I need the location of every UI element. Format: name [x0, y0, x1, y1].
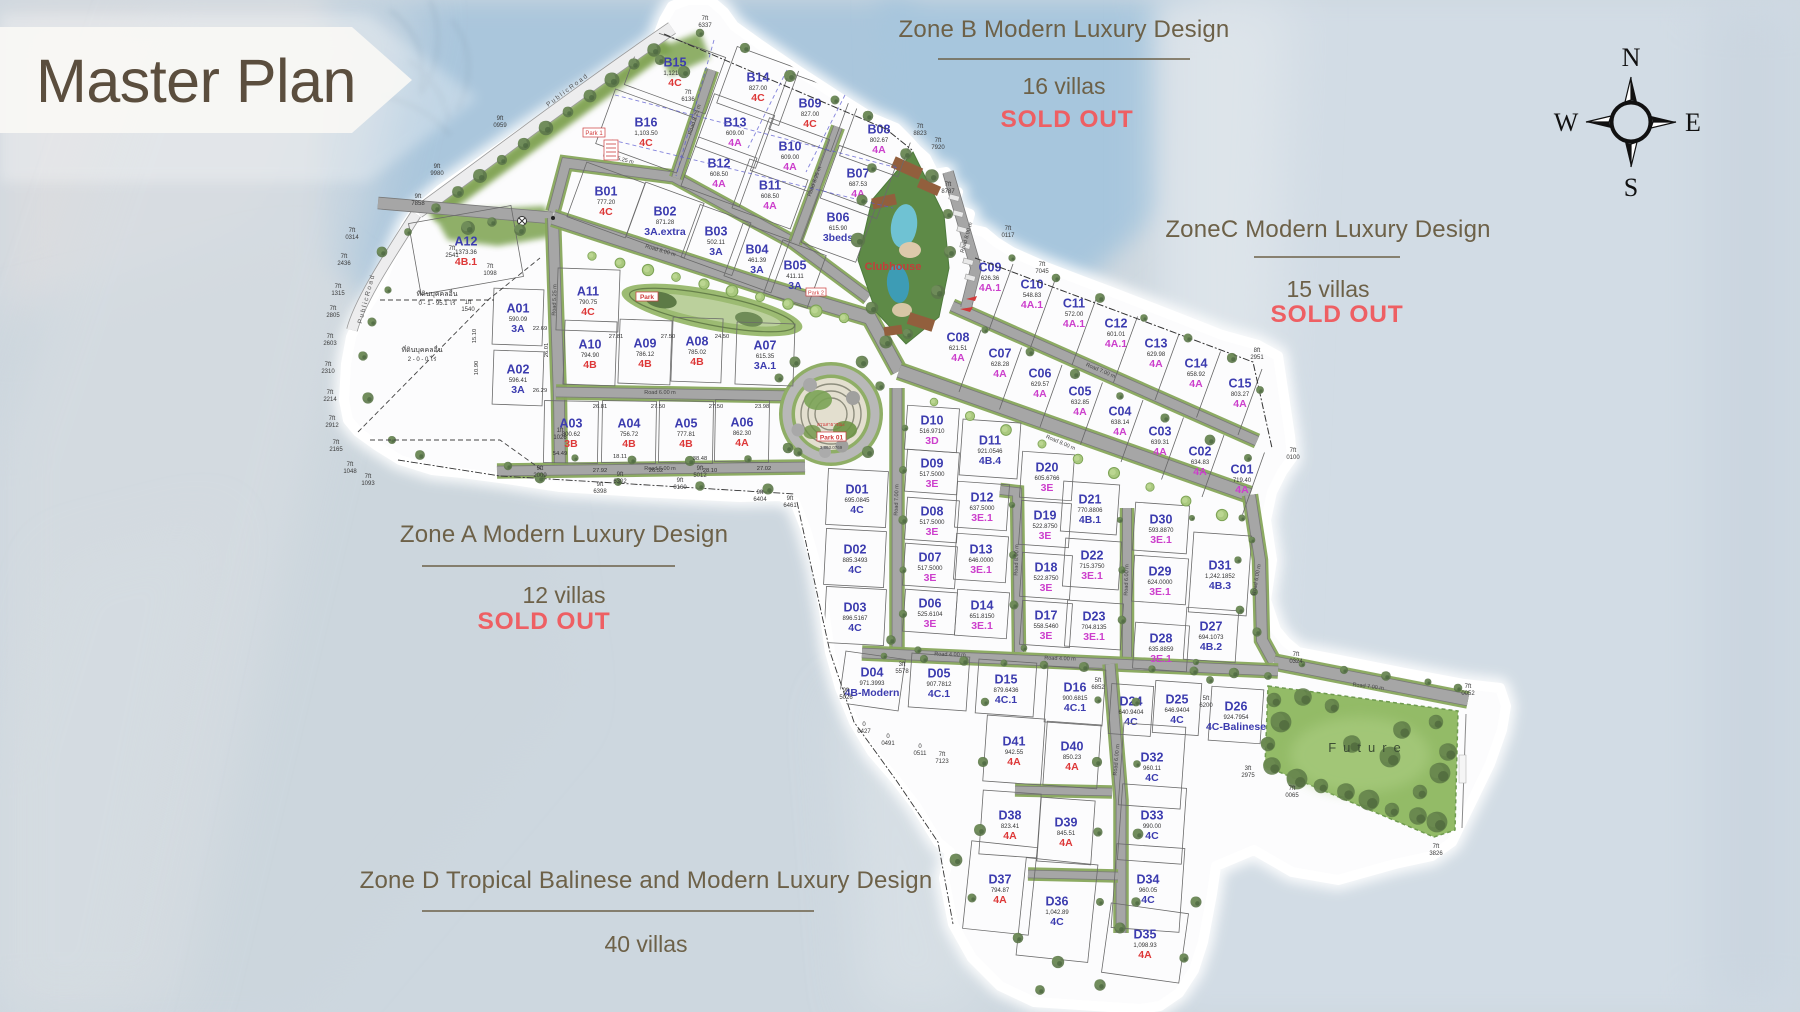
svg-text:9ft: 9ft	[843, 688, 850, 694]
svg-text:Road 6.00 m: Road 6.00 m	[644, 390, 676, 396]
svg-text:0065: 0065	[1285, 793, 1299, 799]
svg-text:1315: 1315	[331, 291, 345, 297]
svg-text:7ft: 7ft	[335, 284, 342, 290]
svg-text:Clubhouse: Clubhouse	[865, 261, 922, 273]
svg-text:3E: 3E	[926, 478, 939, 490]
svg-text:7ft: 7ft	[329, 416, 336, 422]
svg-text:C03: C03	[1149, 425, 1172, 439]
svg-text:5ft: 5ft	[1095, 678, 1102, 684]
svg-text:D36: D36	[1046, 895, 1069, 909]
svg-text:7ft: 7ft	[1293, 652, 1300, 658]
svg-text:4C: 4C	[850, 504, 864, 516]
svg-text:7ft: 7ft	[945, 182, 952, 188]
svg-text:4C-Balinese: 4C-Balinese	[1206, 721, 1266, 733]
svg-text:3E.1: 3E.1	[970, 564, 992, 576]
svg-text:4C: 4C	[751, 92, 765, 104]
svg-text:3D: 3D	[925, 435, 939, 447]
svg-text:16 villas: 16 villas	[1022, 73, 1105, 99]
svg-text:3E.1: 3E.1	[971, 620, 993, 632]
svg-text:4A: 4A	[1149, 358, 1163, 370]
svg-text:4C.1: 4C.1	[928, 688, 950, 700]
svg-text:4A: 4A	[1153, 446, 1167, 458]
svg-text:D26: D26	[1225, 700, 1248, 714]
svg-text:0100: 0100	[1286, 455, 1300, 461]
svg-text:4A: 4A	[1189, 378, 1203, 390]
svg-text:C14: C14	[1185, 357, 1208, 371]
svg-text:E: E	[1685, 108, 1701, 137]
svg-text:7ft: 7ft	[1005, 226, 1012, 232]
svg-text:B07: B07	[847, 167, 870, 181]
svg-text:4A: 4A	[1073, 406, 1087, 418]
svg-text:3beds: 3beds	[823, 232, 854, 244]
svg-text:Zone A Modern Luxury Design: Zone A Modern Luxury Design	[400, 521, 728, 548]
svg-text:4A: 4A	[1235, 484, 1249, 496]
svg-text:3E.1: 3E.1	[1150, 653, 1172, 665]
svg-text:9ft: 9ft	[617, 472, 624, 478]
svg-text:C10: C10	[1021, 278, 1044, 292]
svg-text:Road 4.00 m: Road 4.00 m	[934, 651, 966, 658]
svg-text:D01: D01	[846, 483, 869, 497]
svg-text:0160: 0160	[673, 485, 687, 491]
svg-text:ที่ดินบุคคลอื่น: ที่ดินบุคคลอื่น	[401, 345, 442, 354]
svg-text:27.50: 27.50	[661, 334, 676, 340]
svg-text:4C: 4C	[1145, 830, 1159, 842]
svg-text:5026: 5026	[839, 695, 853, 701]
svg-text:26.81: 26.81	[593, 404, 608, 410]
svg-text:6852: 6852	[1091, 685, 1105, 691]
svg-text:B06: B06	[827, 211, 850, 225]
svg-text:B13: B13	[724, 116, 747, 130]
svg-text:Road 8.00 m: Road 8.00 m	[1013, 544, 1020, 576]
svg-text:D13: D13	[970, 543, 993, 557]
svg-text:7ft: 7ft	[449, 246, 456, 252]
svg-text:D20: D20	[1036, 461, 1059, 475]
svg-text:A11: A11	[577, 285, 599, 299]
svg-text:D35: D35	[1134, 928, 1157, 942]
svg-text:6200: 6200	[1199, 703, 1213, 709]
svg-text:1ft: 1ft	[465, 300, 472, 306]
svg-text:2214: 2214	[323, 397, 337, 403]
svg-text:1098: 1098	[483, 271, 497, 277]
svg-text:Road 5.25 m: Road 5.25 m	[551, 284, 558, 316]
svg-text:2805: 2805	[326, 313, 340, 319]
svg-text:D07: D07	[919, 551, 942, 565]
svg-text:3E: 3E	[1040, 582, 1053, 594]
svg-text:D08: D08	[921, 505, 944, 519]
svg-text:3A: 3A	[511, 323, 525, 335]
svg-text:D18: D18	[1035, 561, 1058, 575]
svg-text:4A: 4A	[1059, 837, 1073, 849]
svg-text:D29: D29	[1149, 565, 1172, 579]
svg-text:ที่ดินบุคคลอื่น: ที่ดินบุคคลอื่น	[416, 289, 457, 298]
svg-text:27.50: 27.50	[709, 404, 724, 410]
svg-text:4A.1: 4A.1	[979, 282, 1001, 294]
svg-text:Park 1: Park 1	[585, 131, 603, 137]
svg-text:0117: 0117	[1002, 233, 1016, 239]
svg-text:4B.2: 4B.2	[1200, 641, 1222, 653]
svg-text:7ft: 7ft	[333, 440, 340, 446]
svg-text:A04: A04	[618, 417, 641, 431]
svg-text:5578: 5578	[895, 669, 909, 675]
svg-text:28.10: 28.10	[703, 468, 718, 474]
svg-text:3E.1: 3E.1	[1081, 570, 1103, 582]
svg-text:4A: 4A	[1007, 756, 1021, 768]
svg-text:3E: 3E	[1040, 630, 1053, 642]
svg-text:4C: 4C	[581, 306, 595, 318]
svg-text:1540: 1540	[461, 307, 475, 313]
svg-text:B10: B10	[779, 140, 802, 154]
svg-text:7920: 7920	[931, 145, 945, 151]
svg-text:D09: D09	[921, 457, 944, 471]
svg-text:D02: D02	[844, 543, 867, 557]
svg-text:7ft: 7ft	[1290, 448, 1297, 454]
svg-text:7ft: 7ft	[685, 90, 692, 96]
svg-text:4C.1: 4C.1	[1064, 702, 1086, 714]
svg-text:4B: 4B	[638, 358, 652, 370]
svg-text:4A: 4A	[1233, 398, 1247, 410]
svg-text:6136: 6136	[681, 97, 695, 103]
svg-text:D41: D41	[1003, 735, 1026, 749]
svg-text:SOLD OUT: SOLD OUT	[1001, 106, 1134, 133]
svg-text:7ft: 7ft	[1039, 262, 1046, 268]
svg-text:4A: 4A	[1113, 426, 1127, 438]
svg-text:3826: 3826	[1429, 851, 1443, 857]
svg-text:7123: 7123	[935, 759, 949, 765]
svg-text:27.81: 27.81	[609, 334, 624, 340]
svg-text:C04: C04	[1109, 405, 1132, 419]
svg-text:Zone D Tropical Balinese and M: Zone D Tropical Balinese and Modern Luxu…	[360, 867, 933, 894]
svg-text:C06: C06	[1029, 367, 1052, 381]
svg-text:Road 6.00 m: Road 6.00 m	[644, 466, 676, 472]
svg-text:Road 4.00 m: Road 4.00 m	[1044, 655, 1076, 662]
svg-text:B03: B03	[705, 225, 728, 239]
svg-text:4C: 4C	[1145, 772, 1159, 784]
svg-text:2009: 2009	[533, 473, 547, 479]
svg-text:4B: 4B	[690, 356, 704, 368]
svg-text:9ft: 9ft	[597, 482, 604, 488]
svg-text:D06: D06	[919, 597, 942, 611]
svg-text:C13: C13	[1145, 337, 1168, 351]
svg-text:4C: 4C	[1170, 714, 1184, 726]
svg-text:Future: Future	[1328, 740, 1408, 755]
svg-text:26.29: 26.29	[533, 388, 548, 394]
svg-text:3,863.0769: 3,863.0769	[820, 445, 843, 450]
svg-text:0314: 0314	[345, 235, 359, 241]
svg-text:7ft: 7ft	[325, 362, 332, 368]
svg-text:C02: C02	[1189, 445, 1212, 459]
svg-text:D17: D17	[1035, 609, 1058, 623]
svg-text:4A: 4A	[1065, 761, 1079, 773]
svg-text:Park 01: Park 01	[820, 434, 844, 441]
svg-text:A02: A02	[507, 363, 530, 377]
svg-text:54.49: 54.49	[553, 451, 568, 457]
svg-text:4C: 4C	[848, 622, 862, 634]
svg-text:7ft: 7ft	[1289, 786, 1296, 792]
svg-text:2310: 2310	[321, 369, 335, 375]
svg-text:0959: 0959	[493, 123, 507, 129]
svg-text:0491: 0491	[881, 741, 895, 747]
svg-text:C01: C01	[1231, 463, 1254, 477]
svg-text:B02: B02	[654, 205, 677, 219]
svg-text:0511: 0511	[914, 751, 928, 757]
svg-text:2165: 2165	[329, 447, 343, 453]
svg-text:4A: 4A	[712, 178, 726, 190]
svg-text:ZoneC Modern Luxury Design: ZoneC Modern Luxury Design	[1165, 216, 1490, 243]
svg-text:SOLD OUT: SOLD OUT	[478, 608, 611, 635]
svg-text:10.90: 10.90	[474, 361, 480, 376]
svg-text:2975: 2975	[1241, 773, 1255, 779]
svg-text:2912: 2912	[325, 423, 339, 429]
svg-text:4A: 4A	[951, 352, 965, 364]
svg-text:D14: D14	[971, 599, 994, 613]
svg-text:C05: C05	[1069, 385, 1092, 399]
svg-text:4A: 4A	[1003, 830, 1017, 842]
svg-text:D37: D37	[989, 873, 1012, 887]
svg-text:D32: D32	[1141, 751, 1164, 765]
svg-text:4A.1: 4A.1	[1021, 299, 1043, 311]
svg-text:A08: A08	[686, 335, 709, 349]
svg-text:4C: 4C	[803, 118, 817, 130]
svg-text:3A.1: 3A.1	[754, 360, 776, 372]
svg-text:4B.1: 4B.1	[1079, 514, 1101, 526]
svg-text:4A: 4A	[728, 137, 742, 149]
svg-text:0324: 0324	[1289, 659, 1303, 665]
svg-text:D39: D39	[1055, 816, 1078, 830]
svg-text:2951: 2951	[1250, 355, 1264, 361]
svg-text:สวนสาธารณะ: สวนสาธารณะ	[817, 422, 845, 427]
svg-text:W: W	[1554, 108, 1579, 137]
svg-text:4C: 4C	[1050, 916, 1064, 928]
svg-text:7ft: 7ft	[1465, 684, 1472, 690]
svg-text:D31: D31	[1209, 559, 1232, 573]
svg-text:B05: B05	[784, 259, 807, 273]
svg-text:6337: 6337	[698, 23, 712, 29]
svg-text:A01: A01	[507, 302, 530, 316]
svg-text:4A: 4A	[993, 368, 1007, 380]
svg-text:A12: A12	[455, 235, 478, 249]
svg-text:23.98: 23.98	[755, 404, 770, 410]
svg-text:C15: C15	[1229, 377, 1252, 391]
svg-text:S: S	[1624, 173, 1638, 202]
svg-text:4A: 4A	[735, 437, 749, 449]
svg-text:Master Plan: Master Plan	[36, 47, 356, 115]
svg-text:7ft: 7ft	[330, 306, 337, 312]
svg-text:D15: D15	[995, 673, 1018, 687]
svg-text:4A.1: 4A.1	[1063, 318, 1085, 330]
svg-text:4A: 4A	[1138, 949, 1152, 961]
svg-text:SOLD OUT: SOLD OUT	[1271, 301, 1404, 328]
svg-text:40 villas: 40 villas	[604, 931, 687, 957]
svg-text:D21: D21	[1079, 493, 1102, 507]
svg-text:4A: 4A	[763, 200, 777, 212]
svg-text:2436: 2436	[337, 261, 351, 267]
svg-text:38.48: 38.48	[693, 456, 708, 462]
svg-text:2541: 2541	[445, 253, 459, 259]
svg-text:7ft: 7ft	[327, 334, 334, 340]
svg-text:7ft: 7ft	[939, 752, 946, 758]
svg-text:27.02: 27.02	[757, 466, 772, 472]
svg-text:B11: B11	[759, 179, 781, 193]
svg-text:9ft: 9ft	[415, 194, 422, 200]
svg-text:Road 6.00 m: Road 6.00 m	[1123, 564, 1130, 596]
svg-text:C08: C08	[947, 331, 970, 345]
svg-text:C07: C07	[989, 347, 1012, 361]
svg-text:N: N	[1622, 43, 1641, 72]
svg-text:8ft: 8ft	[1254, 348, 1261, 354]
svg-text:D10: D10	[921, 414, 944, 428]
svg-text:2603: 2603	[323, 341, 337, 347]
svg-text:4C: 4C	[1124, 716, 1138, 728]
svg-text:D04: D04	[861, 666, 884, 680]
svg-text:D11: D11	[979, 434, 1001, 448]
svg-text:7ft: 7ft	[917, 124, 924, 130]
svg-text:9ft: 9ft	[434, 164, 441, 170]
svg-text:12 villas: 12 villas	[522, 582, 605, 608]
svg-text:A06: A06	[731, 416, 754, 430]
svg-text:4B: 4B	[679, 438, 693, 450]
svg-text:D25: D25	[1166, 693, 1189, 707]
svg-text:3A: 3A	[709, 246, 723, 258]
svg-text:B04: B04	[746, 243, 769, 257]
svg-text:A10: A10	[579, 338, 602, 352]
svg-text:15 villas: 15 villas	[1286, 276, 1369, 302]
svg-text:3E.1: 3E.1	[1150, 534, 1172, 546]
svg-text:3A: 3A	[750, 264, 764, 276]
svg-text:7ft: 7ft	[347, 462, 354, 468]
svg-text:7ft: 7ft	[487, 264, 494, 270]
svg-text:D03: D03	[844, 601, 867, 615]
svg-text:0052: 0052	[1461, 691, 1475, 697]
svg-text:3ft: 3ft	[1245, 766, 1252, 772]
svg-text:27.92: 27.92	[593, 468, 608, 474]
svg-text:1ft: 1ft	[557, 428, 564, 434]
svg-text:3A.extra: 3A.extra	[644, 226, 686, 238]
svg-text:3E.1: 3E.1	[971, 512, 993, 524]
svg-text:4C: 4C	[599, 206, 613, 218]
svg-text:26.01: 26.01	[544, 343, 550, 358]
svg-text:D23: D23	[1083, 610, 1106, 624]
svg-text:3E: 3E	[1039, 530, 1052, 542]
svg-text:1093: 1093	[361, 481, 375, 487]
svg-text:5ft: 5ft	[1203, 696, 1210, 702]
svg-text:4A: 4A	[993, 894, 1007, 906]
svg-text:D40: D40	[1061, 740, 1084, 754]
svg-text:7ft: 7ft	[327, 390, 334, 396]
svg-text:24.50: 24.50	[715, 334, 730, 340]
svg-text:D30: D30	[1150, 513, 1173, 527]
svg-text:9ft: 9ft	[677, 478, 684, 484]
svg-text:B16: B16	[635, 116, 658, 130]
svg-text:D28: D28	[1150, 632, 1173, 646]
svg-text:3E.1: 3E.1	[1149, 586, 1171, 598]
svg-text:D33: D33	[1141, 809, 1164, 823]
svg-text:C12: C12	[1105, 317, 1128, 331]
svg-text:3ft: 3ft	[899, 662, 906, 668]
svg-text:7045: 7045	[1035, 269, 1049, 275]
svg-text:1048: 1048	[343, 469, 357, 475]
svg-text:Park 2: Park 2	[808, 291, 824, 297]
svg-text:D34: D34	[1137, 873, 1160, 887]
svg-text:9980: 9980	[430, 171, 444, 177]
svg-text:Park: Park	[640, 294, 654, 301]
svg-text:3E: 3E	[924, 618, 937, 630]
svg-text:Zone B Modern Luxury Design: Zone B Modern Luxury Design	[899, 16, 1230, 43]
svg-text:22.69: 22.69	[533, 326, 548, 332]
svg-text:D19: D19	[1034, 509, 1057, 523]
svg-text:9ft: 9ft	[497, 116, 504, 122]
svg-text:7858: 7858	[411, 201, 425, 207]
svg-text:27.50: 27.50	[651, 404, 666, 410]
svg-text:3E.1: 3E.1	[1083, 631, 1105, 643]
svg-text:8787: 8787	[941, 189, 955, 195]
svg-text:4A: 4A	[1193, 466, 1207, 478]
svg-text:A05: A05	[675, 417, 698, 431]
svg-text:4A.1: 4A.1	[1105, 338, 1127, 350]
svg-text:C11: C11	[1063, 297, 1085, 311]
svg-text:6302: 6302	[613, 479, 627, 485]
svg-text:D16: D16	[1064, 681, 1087, 695]
svg-text:4B-Modern: 4B-Modern	[845, 687, 900, 699]
svg-text:7ft: 7ft	[935, 138, 942, 144]
svg-text:1026: 1026	[553, 435, 567, 441]
svg-text:7ft: 7ft	[349, 228, 356, 234]
svg-text:3A: 3A	[511, 384, 525, 396]
svg-text:9ft: 9ft	[787, 496, 794, 502]
svg-text:4A: 4A	[872, 144, 886, 156]
svg-text:6461: 6461	[783, 503, 797, 509]
svg-text:3E: 3E	[1041, 482, 1054, 494]
svg-text:Road 7.00 m: Road 7.00 m	[893, 484, 900, 516]
svg-text:D22: D22	[1081, 549, 1104, 563]
svg-text:4B: 4B	[583, 359, 597, 371]
svg-text:15.10: 15.10	[472, 329, 478, 344]
svg-text:B09: B09	[799, 97, 822, 111]
svg-text:7ft: 7ft	[341, 254, 348, 260]
svg-text:B08: B08	[868, 123, 891, 137]
svg-text:3E: 3E	[924, 572, 937, 584]
svg-text:7ft: 7ft	[702, 16, 709, 22]
svg-text:C09: C09	[979, 261, 1002, 275]
svg-text:A09: A09	[634, 337, 657, 351]
svg-text:D12: D12	[971, 491, 994, 505]
svg-text:18.11: 18.11	[613, 454, 627, 460]
svg-text:D27: D27	[1200, 620, 1223, 634]
svg-text:4B.4: 4B.4	[979, 455, 1001, 467]
svg-text:6404: 6404	[753, 497, 767, 503]
svg-text:4A: 4A	[783, 161, 797, 173]
svg-text:7ft: 7ft	[1433, 844, 1440, 850]
svg-text:0427: 0427	[857, 729, 871, 735]
svg-text:6398: 6398	[593, 489, 607, 495]
svg-text:8823: 8823	[913, 131, 927, 137]
svg-text:3E: 3E	[926, 526, 939, 538]
svg-text:4B.3: 4B.3	[1209, 580, 1231, 592]
svg-text:4C: 4C	[848, 564, 862, 576]
svg-text:4C: 4C	[1141, 894, 1155, 906]
svg-text:4B: 4B	[622, 438, 636, 450]
svg-text:D38: D38	[999, 809, 1022, 823]
svg-text:B01: B01	[595, 185, 618, 199]
svg-text:3A: 3A	[788, 280, 802, 292]
svg-text:D05: D05	[928, 667, 951, 681]
svg-text:4C: 4C	[668, 77, 682, 89]
svg-text:9ft: 9ft	[757, 490, 764, 496]
svg-text:4C.1: 4C.1	[995, 694, 1017, 706]
svg-text:4A: 4A	[1033, 388, 1047, 400]
svg-text:7ft: 7ft	[365, 474, 372, 480]
svg-text:A07: A07	[754, 339, 777, 353]
